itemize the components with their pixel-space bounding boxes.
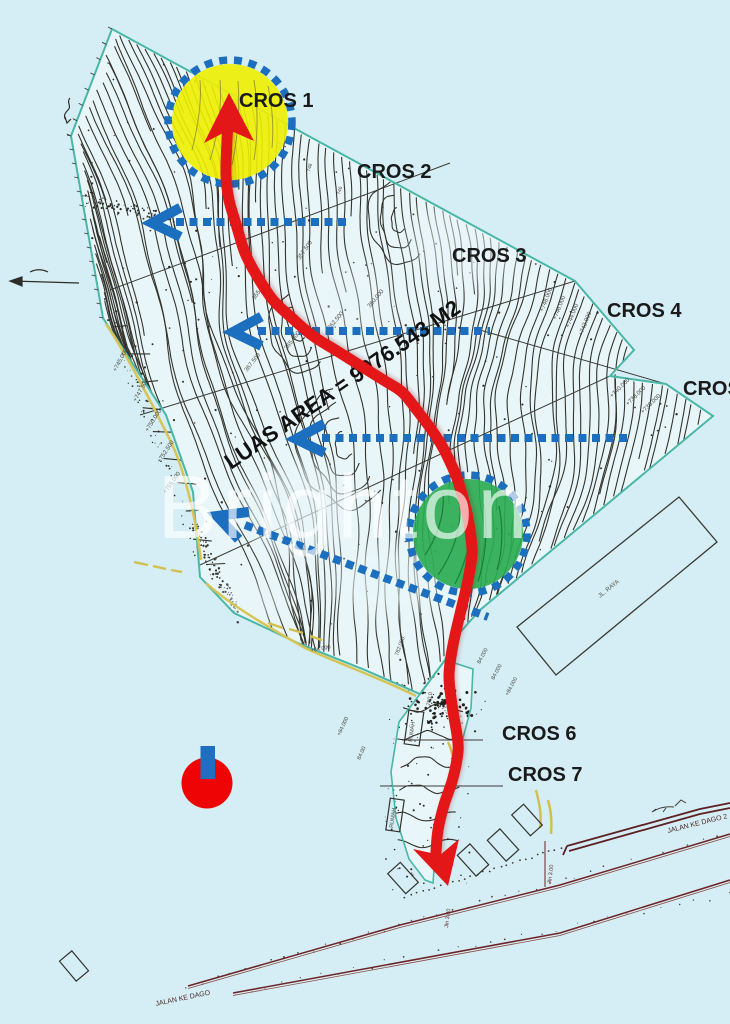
svg-text:CROS 1: CROS 1 (239, 90, 313, 112)
svg-text:CROS 6: CROS 6 (502, 723, 576, 745)
svg-text:CROS 3: CROS 3 (452, 245, 526, 267)
svg-text:Brighton: Brighton (157, 458, 532, 558)
svg-text:CROS 4: CROS 4 (607, 300, 682, 322)
svg-text:CROS 2: CROS 2 (357, 161, 431, 183)
svg-text:CROS 7: CROS 7 (508, 764, 582, 786)
svg-text:CROS 5: CROS 5 (683, 378, 730, 400)
